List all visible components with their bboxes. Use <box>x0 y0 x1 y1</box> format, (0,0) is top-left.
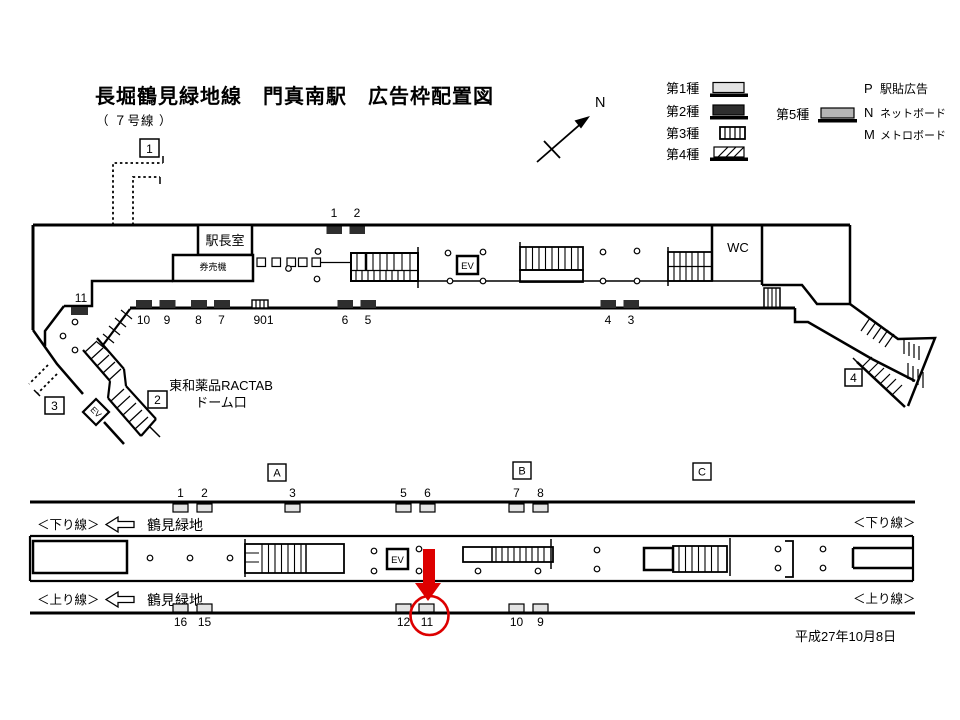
legend-type5-swatch <box>821 108 854 118</box>
exit4-stair-hatch-d <box>862 357 902 395</box>
section-labels: A B C <box>268 462 711 481</box>
pillar <box>820 565 826 571</box>
legend-type4-label: 第4種 <box>666 147 699 162</box>
legend-type1-swatch <box>713 83 744 93</box>
ad-box-type2 <box>327 227 343 235</box>
ad-number: 1 <box>331 206 338 220</box>
legend-type1-base <box>710 94 748 98</box>
ad-number: 15 <box>198 615 212 629</box>
ad-number: 7 <box>513 486 520 500</box>
concourse-elevator-label: EV <box>461 261 474 272</box>
legend-p-label: 駅貼広告 <box>880 81 928 96</box>
gate-box <box>257 258 266 267</box>
platform-ad-boxes-top <box>173 504 548 512</box>
pillar <box>286 266 292 272</box>
platform-ad-boxes-bottom <box>173 604 548 612</box>
ad-number: 8 <box>195 313 202 327</box>
ad-number: 2 <box>354 206 361 220</box>
legend-type2-label: 第2種 <box>666 104 699 119</box>
legend-m-label: メトロボード <box>880 129 946 142</box>
station-diagram-canvas: 長堀鶴見緑地線 門真南駅 広告枠配置図 （ ７号線 ） N 第1種 第2種 第3… <box>0 0 960 720</box>
ad-box-type2 <box>350 227 366 235</box>
concourse-ad-positions-top: 1 2 <box>327 206 366 234</box>
ad-box-type1 <box>533 604 548 612</box>
ad-number: 3 <box>289 486 296 500</box>
legend-p-key: P <box>864 81 873 96</box>
wc-label: WC <box>727 240 749 255</box>
ad-number: 11 <box>421 615 434 629</box>
stairs-box <box>520 270 583 282</box>
platform-ad-numbers-bottom: 16 15 12 11 10 9 <box>174 615 544 629</box>
gate-box <box>272 258 281 267</box>
legend-n-key: N <box>864 105 873 120</box>
ad-box-type2 <box>361 300 377 308</box>
up-line-label-right: ＜上り線＞ <box>853 591 916 606</box>
exit2-number: 2 <box>154 393 161 407</box>
direction-arrow-icon <box>106 592 134 607</box>
ad-box-type1 <box>420 504 435 512</box>
ad-number: 6 <box>342 313 349 327</box>
pillar <box>416 568 422 574</box>
stairs-treads <box>356 253 410 281</box>
ad-box-type2 <box>191 300 207 308</box>
concourse-ad-position-11: 11 <box>71 291 88 315</box>
ad-number: 10 <box>510 615 524 629</box>
stairs-outline <box>351 253 418 281</box>
down-line-label-left: ＜下り線＞ <box>37 517 100 532</box>
platform-room-left <box>33 541 127 573</box>
section-a-label: A <box>273 468 281 480</box>
ad-box-type2 <box>160 300 176 308</box>
platform-stairs-right <box>644 538 730 576</box>
pillar <box>371 548 377 554</box>
concourse-stairs-left <box>351 247 418 288</box>
pillar <box>445 250 451 256</box>
pillar <box>480 278 486 284</box>
exit3-number: 3 <box>51 399 58 413</box>
pillar <box>447 278 453 284</box>
pillar <box>60 333 66 339</box>
platform-bracket <box>785 541 793 577</box>
legend-type3-label: 第3種 <box>666 126 699 141</box>
left-inner-wall <box>45 306 64 346</box>
pillar <box>600 249 606 255</box>
ad-box-type1 <box>197 504 212 512</box>
platform-map: A B C 1 2 3 5 6 7 8 ＜ <box>30 462 916 629</box>
pillar <box>187 555 193 561</box>
platform-room-right <box>853 548 913 568</box>
right-room-walls <box>762 225 850 304</box>
exit4-number: 4 <box>850 371 857 385</box>
header: 長堀鶴見緑地線 門真南駅 広告枠配置図 （ ７号線 ） <box>95 84 494 128</box>
ad-number: 7 <box>218 313 225 327</box>
north-label: N <box>595 95 605 111</box>
platform-elevator-label: EV <box>391 555 404 566</box>
ad-box-type3 <box>252 300 268 308</box>
pillar <box>820 546 826 552</box>
pillar <box>480 249 486 255</box>
concourse-map: 1 駅長室 券売機 WC <box>29 139 935 444</box>
ad-placement-diagram-page: 長堀鶴見緑地線 門真南駅 広告枠配置図 （ ７号線 ） N 第1種 第2種 第3… <box>0 0 960 720</box>
highlight-arrow-shaft <box>423 549 435 583</box>
ad-box-type2 <box>601 300 617 308</box>
ad-box-type1 <box>396 504 411 512</box>
legend-type2-base <box>710 116 748 120</box>
concourse-ad-positions-bottom: 10 9 8 7 901 6 5 4 3 <box>136 300 639 327</box>
ad-number: 2 <box>201 486 208 500</box>
ad-box-type1 <box>285 504 300 512</box>
ad-number: 9 <box>537 615 544 629</box>
ad-box-type1 <box>396 604 411 612</box>
legend: 第1種 第2種 第3種 第4種 第5種 P 駅貼広告 N ネットボード M メト… <box>666 81 946 162</box>
legend-n-label: ネットボード <box>880 107 946 120</box>
platform-edges <box>30 536 913 581</box>
ad-box-type1 <box>509 604 524 612</box>
pillar <box>535 568 541 574</box>
stairs-treads <box>262 544 301 573</box>
ad-box-type2 <box>624 300 640 308</box>
ad-number: 6 <box>424 486 431 500</box>
pillar <box>594 566 600 572</box>
ad-box-type2 <box>136 300 152 308</box>
ad-number: 10 <box>137 313 151 327</box>
ad-number: 5 <box>365 313 372 327</box>
ad-number: 11 <box>75 291 88 305</box>
ad-box-type2 <box>338 300 354 308</box>
station-office-label: 駅長室 <box>205 233 244 248</box>
exit3-passage-dotted <box>29 365 57 393</box>
gate-box <box>299 258 308 267</box>
direction-label-down: 鶴見緑地 <box>147 517 203 533</box>
ad-box-type1-highlighted <box>419 604 434 612</box>
ad-number: 4 <box>605 313 612 327</box>
exit4-area: 4 <box>762 225 935 407</box>
pillar <box>72 347 78 353</box>
stairs-rails <box>245 553 259 562</box>
pillar <box>634 278 640 284</box>
pillar <box>371 568 377 574</box>
up-line-label-left: ＜上り線＞ <box>37 592 100 607</box>
pillar <box>147 555 153 561</box>
ad-number: 9 <box>164 313 171 327</box>
exit3-passage-tick <box>34 390 40 396</box>
legend-m-key: M <box>864 127 875 142</box>
ad-box-type1 <box>533 504 548 512</box>
exit1-number: 1 <box>146 142 153 156</box>
exit4-corridor-lower <box>795 308 872 359</box>
stairs-box <box>644 548 673 570</box>
pillar <box>227 555 233 561</box>
exit1-passage-dotted <box>113 163 163 225</box>
pillar <box>775 565 781 571</box>
pillar <box>775 546 781 552</box>
north-indicator: N <box>537 95 605 162</box>
section-b-label: B <box>518 466 525 478</box>
legend-type1-label: 第1種 <box>666 81 699 96</box>
ticket-machine-label: 券売機 <box>199 261 226 272</box>
pillar <box>475 568 481 574</box>
exit4-stub <box>853 358 858 363</box>
pillar <box>634 248 640 254</box>
left-outer-continuation <box>104 422 124 444</box>
exit2-note-line1: 東和薬品RACTAB <box>169 378 273 393</box>
ad-number: 5 <box>400 486 407 500</box>
concourse-stairs-wc-left <box>668 247 712 286</box>
exit2-note-line2: ドーム口 <box>195 395 247 410</box>
ad-number: 1 <box>177 486 184 500</box>
exit4-corridor-return <box>857 362 905 407</box>
flight3-tick <box>150 427 160 437</box>
direction-arrow-icon <box>106 517 134 532</box>
pillar <box>72 319 78 325</box>
stairs-treads <box>768 288 776 308</box>
legend-type5-label: 第5種 <box>776 107 809 122</box>
platform-stairs-middle <box>463 539 553 574</box>
exit1-passage-ticks <box>160 156 163 184</box>
pillar <box>315 249 321 255</box>
legend-type4-base <box>710 158 748 162</box>
page-title: 長堀鶴見緑地線 門真南駅 広告枠配置図 <box>95 84 494 108</box>
stairs-treads <box>496 547 544 562</box>
ticket-gates <box>257 249 321 282</box>
ad-box-type1 <box>173 504 188 512</box>
page-subtitle: （ ７号線 ） <box>96 113 172 128</box>
ad-box-type1 <box>509 504 524 512</box>
pillar <box>600 278 606 284</box>
platform-stairs-left <box>245 539 344 577</box>
down-line-label-right: ＜下り線＞ <box>853 515 916 530</box>
legend-type5-base <box>818 119 857 123</box>
revision-date: 平成27年10月8日 <box>795 629 896 644</box>
escalator-outline <box>673 546 727 572</box>
ad-box-type1 <box>173 604 188 612</box>
ad-number: 12 <box>397 615 411 629</box>
flight2-bounds <box>83 338 126 398</box>
ad-number: 3 <box>628 313 635 327</box>
exit4-stair-hatch-b <box>904 340 919 360</box>
platform-ad-numbers-top: 1 2 3 5 6 7 8 <box>177 486 544 500</box>
pillar <box>594 547 600 553</box>
ad-number: 8 <box>537 486 544 500</box>
ad-number: 901 <box>253 313 273 327</box>
ad-box-type2 <box>71 307 88 315</box>
section-c-label: C <box>698 467 706 479</box>
pillar <box>314 276 320 282</box>
left-outer-wall <box>33 330 83 394</box>
gate-box <box>312 258 321 267</box>
legend-type2-swatch <box>713 105 744 115</box>
escalator-treads <box>679 546 718 572</box>
ad-number: 16 <box>174 615 188 629</box>
wc-side-stairs <box>764 288 780 308</box>
pillar <box>416 546 422 552</box>
legend-type3-swatch <box>720 127 745 139</box>
ad-box-type2 <box>214 300 230 308</box>
concourse-stairs-right <box>520 242 583 282</box>
ad-box-type1 <box>197 604 212 612</box>
escalator-treads <box>526 247 578 270</box>
